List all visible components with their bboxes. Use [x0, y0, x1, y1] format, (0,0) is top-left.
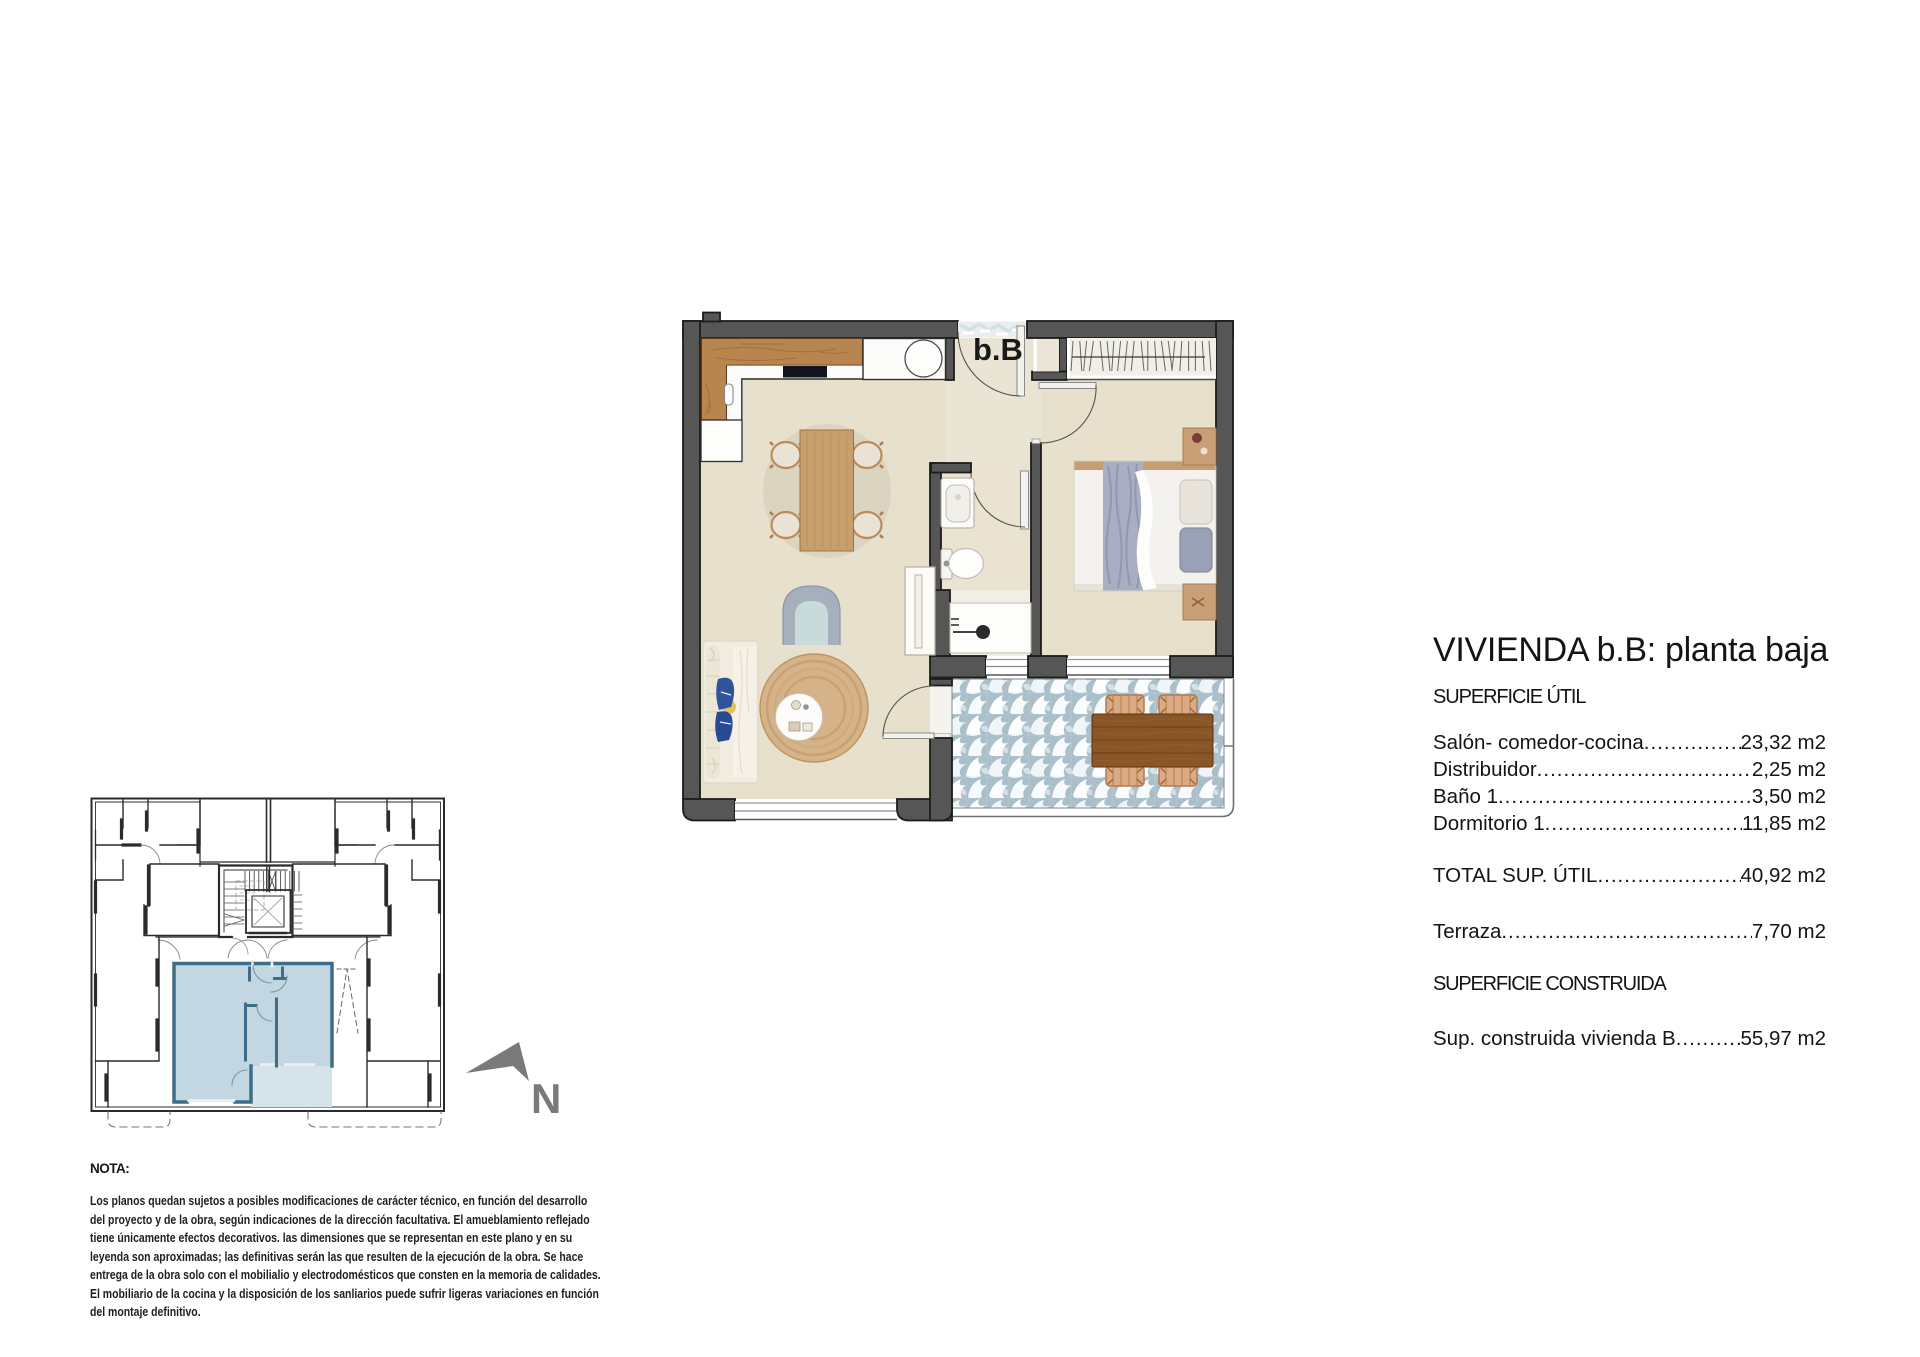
svg-text:N: N [531, 1075, 561, 1122]
svg-text:b.B: b.B [973, 332, 1023, 367]
